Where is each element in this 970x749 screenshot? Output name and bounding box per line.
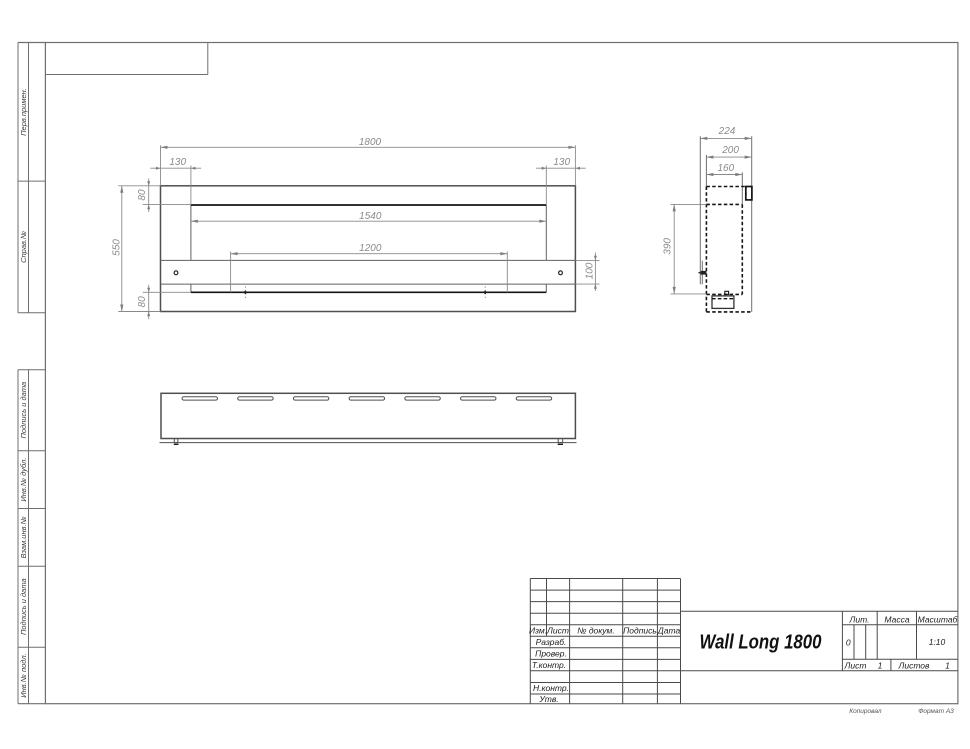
svg-text:Формат А3: Формат А3 [918,708,954,715]
svg-text:1: 1 [878,661,883,671]
svg-text:100: 100 [584,262,595,279]
svg-text:Лист: Лист [546,626,569,636]
svg-text:Т.контр.: Т.контр. [532,660,566,670]
svg-text:Инв.№ подл.: Инв.№ подл. [19,653,28,697]
svg-text:Подпись и дата: Подпись и дата [19,578,28,635]
svg-text:Изм.: Изм. [529,626,547,636]
svg-text:Разраб.: Разраб. [536,637,567,647]
svg-text:550: 550 [112,239,123,256]
svg-text:80: 80 [137,296,148,308]
svg-text:Подпись: Подпись [623,626,657,636]
svg-text:Перв.примен.: Перв.примен. [19,88,28,136]
svg-text:Масштаб: Масштаб [918,614,959,624]
svg-text:Масса: Масса [884,614,909,624]
svg-text:Дата: Дата [657,626,681,636]
svg-text:160: 160 [717,163,734,174]
svg-text:224: 224 [718,126,736,137]
svg-text:Листов: Листов [898,661,931,671]
svg-text:1540: 1540 [359,211,382,222]
svg-text:Копировал: Копировал [849,708,882,715]
svg-text:Лит.: Лит. [849,614,870,624]
svg-text:Утв.: Утв. [538,694,558,704]
svg-text:130: 130 [553,157,570,168]
svg-text:1: 1 [945,661,950,671]
svg-text:Н.контр.: Н.контр. [533,683,569,693]
svg-text:Подпись и дата: Подпись и дата [19,382,28,439]
svg-text:Wall Long 1800: Wall Long 1800 [700,630,823,653]
svg-text:Провер.: Провер. [535,649,567,659]
svg-text:390: 390 [663,238,674,255]
svg-text:Справ.№: Справ.№ [19,231,28,263]
svg-text:№ докум.: № докум. [577,626,614,636]
svg-text:1:10: 1:10 [929,637,946,647]
svg-text:Взам.инв.№: Взам.инв.№ [19,516,28,558]
svg-text:0: 0 [846,638,851,648]
svg-text:Лист: Лист [844,661,867,671]
svg-text:1200: 1200 [359,243,382,254]
svg-text:200: 200 [721,145,739,156]
svg-text:Инв.№ дубл.: Инв.№ дубл. [19,458,28,502]
svg-text:80: 80 [137,189,148,201]
svg-text:130: 130 [169,157,186,168]
svg-text:1800: 1800 [359,137,382,148]
